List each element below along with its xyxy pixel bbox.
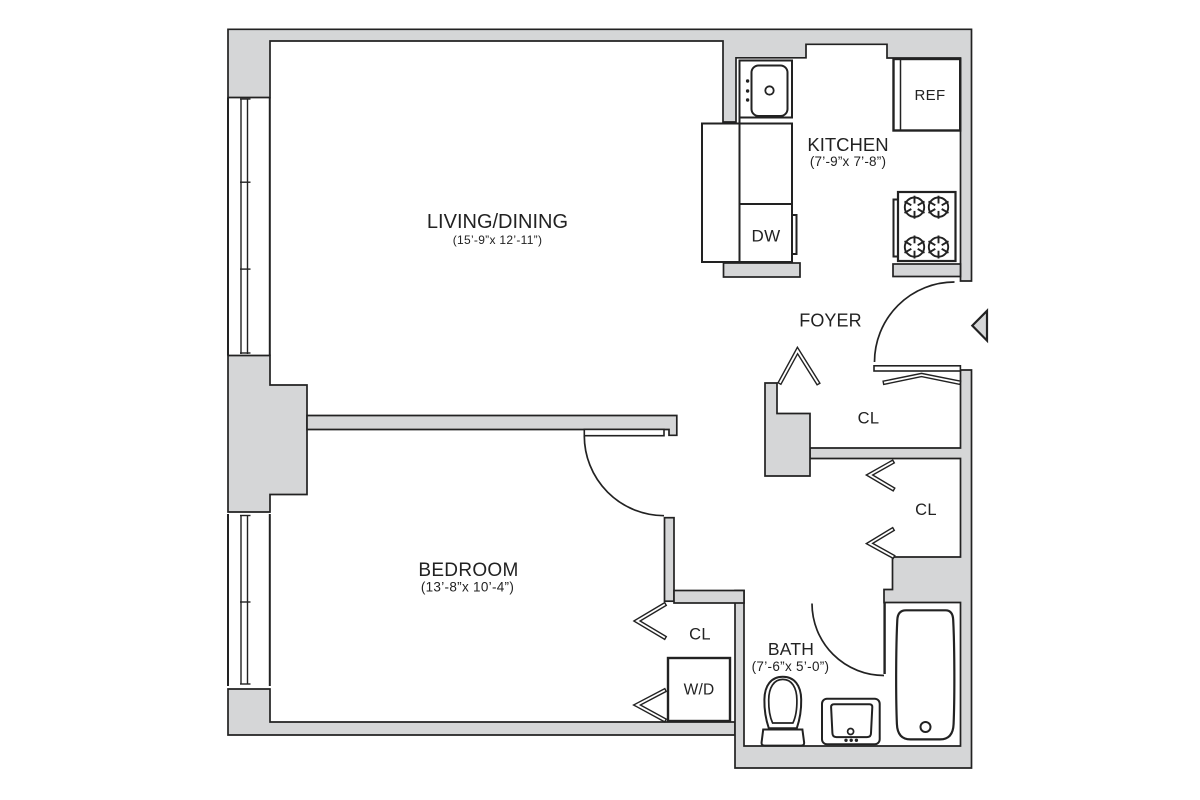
svg-text:BEDROOM: BEDROOM bbox=[418, 560, 518, 581]
svg-text:CL: CL bbox=[689, 626, 711, 644]
svg-text:(7’-9”x 7’-8”): (7’-9”x 7’-8”) bbox=[810, 154, 886, 169]
svg-text:CL: CL bbox=[858, 410, 880, 428]
svg-text:FOYER: FOYER bbox=[799, 311, 862, 331]
svg-text:(15’-9”x 12’-11”): (15’-9”x 12’-11”) bbox=[453, 233, 543, 247]
svg-text:DW: DW bbox=[752, 227, 781, 246]
svg-text:LIVING/DINING: LIVING/DINING bbox=[427, 211, 568, 233]
svg-text:BATH: BATH bbox=[768, 639, 814, 659]
svg-text:(13’-8”x 10’-4”): (13’-8”x 10’-4”) bbox=[421, 580, 514, 595]
svg-text:W/D: W/D bbox=[684, 682, 715, 699]
svg-text:CL: CL bbox=[915, 501, 937, 519]
svg-text:KITCHEN: KITCHEN bbox=[807, 134, 888, 155]
svg-text:REF: REF bbox=[915, 87, 946, 104]
svg-text:(7’-6”x 5’-0”): (7’-6”x 5’-0”) bbox=[752, 659, 830, 674]
